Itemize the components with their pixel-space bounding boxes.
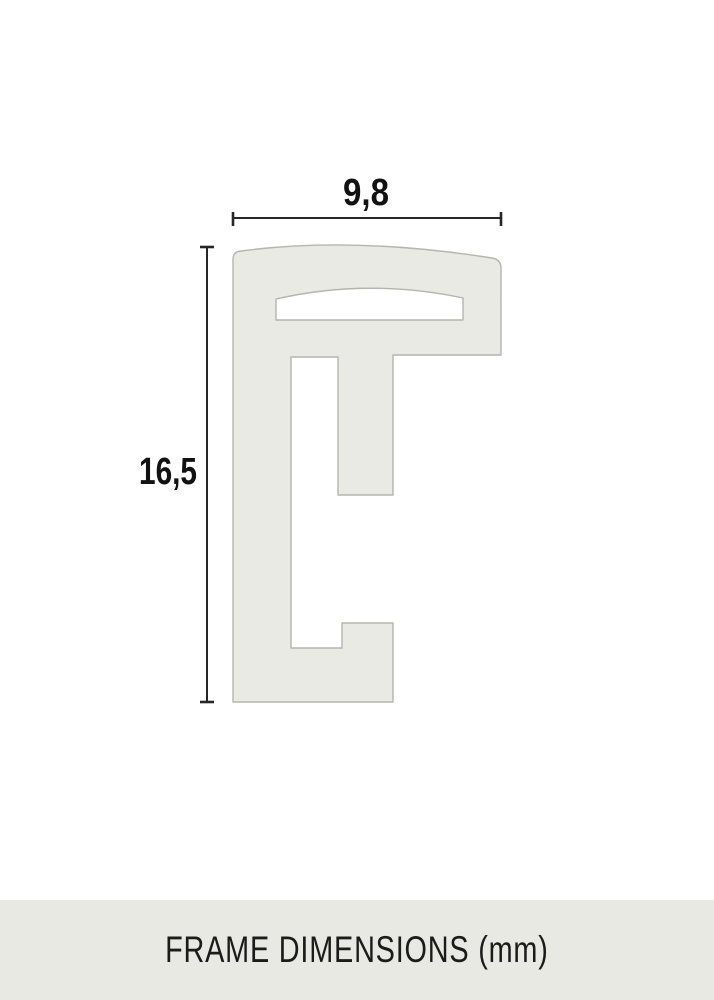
height-dimension: 16,5 (139, 247, 214, 702)
frame-profile-diagram: 9,8 16,5 (0, 0, 714, 900)
footer-caption: FRAME DIMENSIONS (mm) (165, 929, 549, 971)
width-dimension-label: 9,8 (343, 172, 389, 214)
frame-dimension-diagram-page: 9,8 16,5 FRAME DIMENSIONS (mm) (0, 0, 714, 1000)
width-dimension: 9,8 (233, 172, 501, 226)
frame-profile-shape (233, 245, 501, 702)
height-dimension-label: 16,5 (139, 451, 197, 493)
footer-bar: FRAME DIMENSIONS (mm) (0, 900, 714, 1000)
